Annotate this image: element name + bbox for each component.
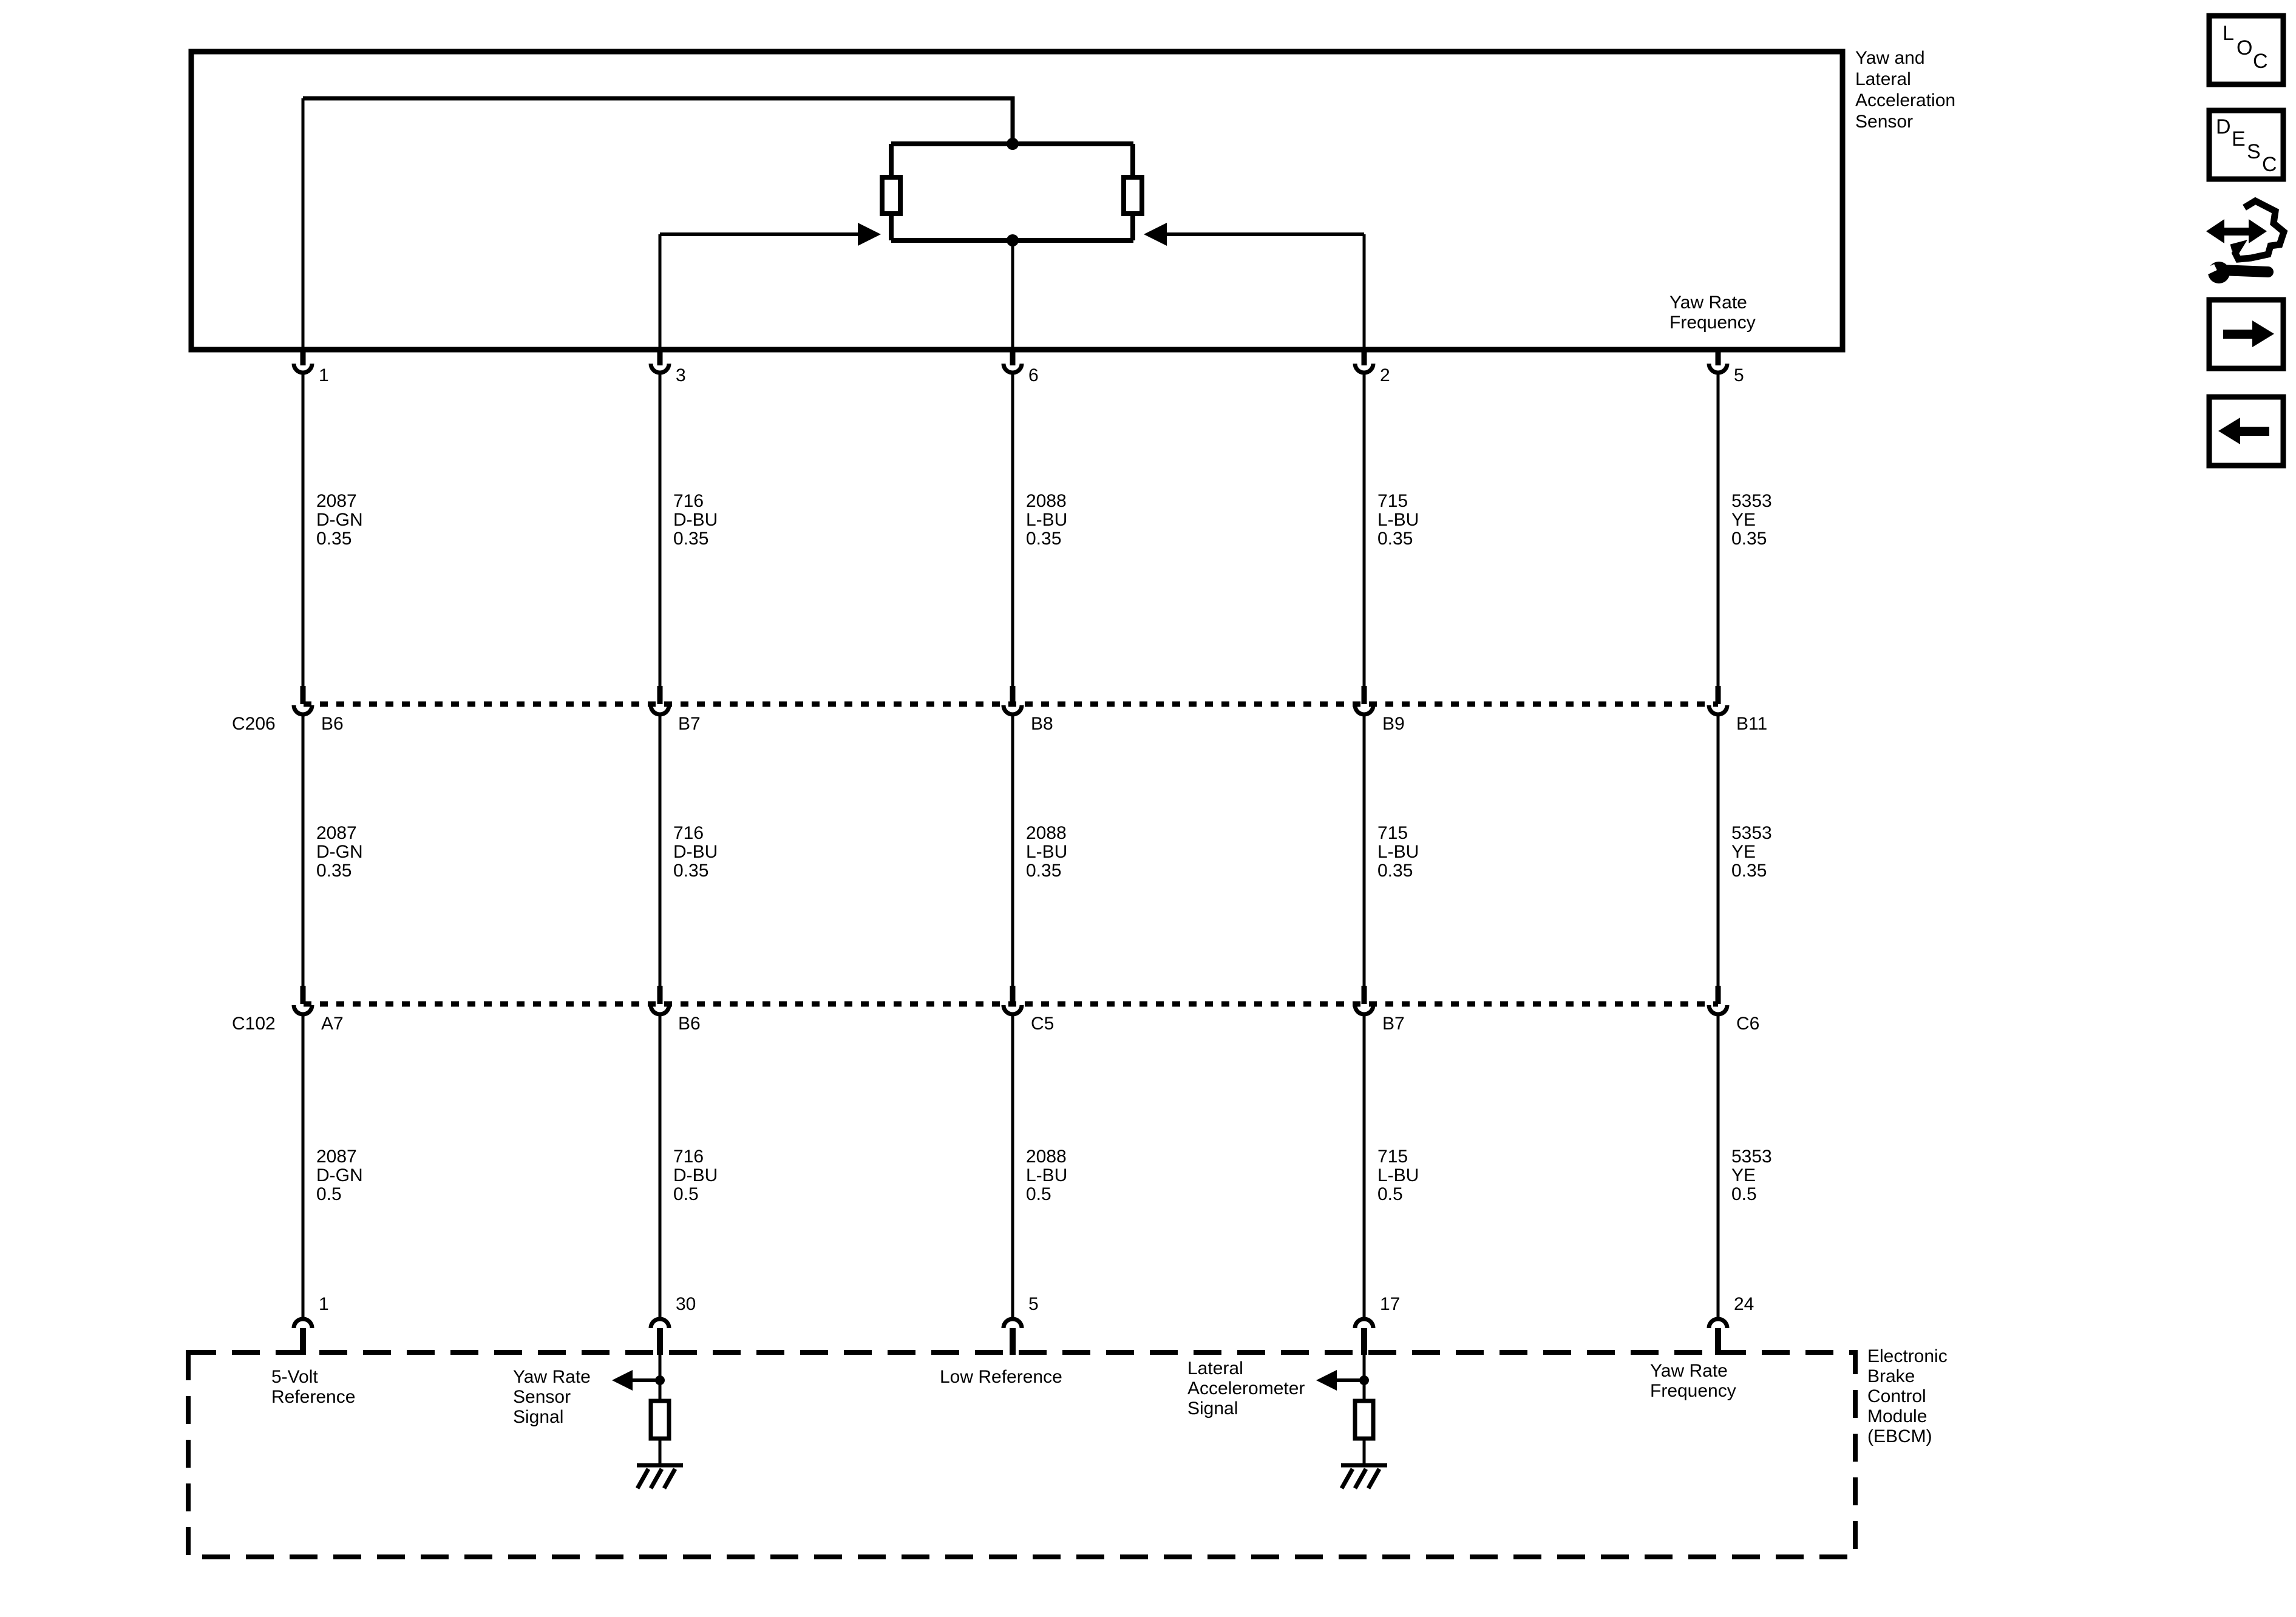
connector-pin: C6 — [1736, 1015, 1759, 1033]
ebcm-pin-number: 30 — [676, 1295, 696, 1314]
pulldown-resistor — [651, 1401, 669, 1439]
loc-letter: L — [2223, 23, 2234, 44]
signal-label-5v-reference: 5-Volt Reference — [271, 1367, 355, 1407]
back-arrow-icon[interactable] — [2218, 418, 2269, 444]
junction-dot — [1359, 1375, 1369, 1385]
connector-pin: B6 — [678, 1015, 701, 1033]
bridge-resistor-left — [882, 177, 900, 214]
sensor-label: Yaw and Lateral Acceleration Sensor — [1855, 47, 1955, 132]
sensor-pin-number: 2 — [1380, 367, 1390, 385]
wire-label: 5353YE0.35 — [1731, 492, 1772, 548]
sensor-pin-connectors — [294, 350, 1727, 373]
ebcm-pin-connectors — [294, 1319, 1727, 1355]
wire-label: 2088L-BU0.35 — [1026, 492, 1067, 548]
wire-label: 2087D-GN0.35 — [316, 824, 363, 880]
desc-letter: E — [2232, 129, 2246, 149]
bridge-resistor-right — [1124, 177, 1142, 214]
signal-arrowhead-right — [858, 223, 881, 246]
ground-symbol — [637, 1465, 683, 1488]
signal-label-low-reference: Low Reference — [940, 1367, 1062, 1387]
vehicle-service-icon[interactable] — [2206, 201, 2284, 283]
signal-arrowhead-left — [612, 1370, 633, 1391]
wire-label: 2088L-BU0.5 — [1026, 1147, 1067, 1204]
forward-arrow-icon[interactable] — [2223, 320, 2274, 347]
signal-arrowhead-left — [1316, 1370, 1337, 1391]
connector-pin: B6 — [321, 715, 344, 733]
sensor-pin-number: 5 — [1734, 367, 1744, 385]
ebcm-pin-number: 17 — [1380, 1295, 1400, 1314]
wire-label: 715L-BU0.35 — [1377, 824, 1419, 880]
connector-name-c206: C206 — [232, 715, 276, 733]
desc-letter: C — [2262, 154, 2277, 175]
sensor-pin-number: 3 — [676, 367, 686, 385]
wire-label: 716D-BU0.35 — [673, 824, 718, 880]
wire-label: 715L-BU0.5 — [1377, 1147, 1419, 1204]
wire-label: 5353YE0.35 — [1731, 824, 1772, 880]
signal-label-yaw-rate-frequency: Yaw Rate Frequency — [1650, 1361, 1736, 1401]
desc-letter: S — [2247, 141, 2261, 162]
loc-letter: C — [2253, 51, 2268, 72]
loc-letter: O — [2237, 38, 2252, 58]
connector-pin: A7 — [321, 1015, 344, 1033]
connector-row-c206 — [294, 686, 1727, 714]
ebcm-label: Electronic Brake Control Module (EBCM) — [1867, 1346, 1948, 1446]
connector-pin: B8 — [1031, 715, 1053, 733]
toolbar — [2206, 16, 2284, 466]
junction-dot — [655, 1375, 665, 1385]
signal-label-lateral-accelerometer-signal: Lateral Accelerometer Signal — [1187, 1358, 1305, 1419]
sensor-pin-number: 1 — [319, 367, 329, 385]
wire-label: 716D-BU0.35 — [673, 492, 718, 548]
wire-label: 715L-BU0.35 — [1377, 492, 1419, 548]
wire-label: 2087D-GN0.35 — [316, 492, 363, 548]
sensor-pin-number: 6 — [1028, 367, 1039, 385]
ebcm-pin-number: 1 — [319, 1295, 329, 1314]
sensor-yaw-rate-frequency-label: Yaw Rate Frequency — [1669, 293, 1756, 333]
pulldown-resistor — [1355, 1401, 1373, 1439]
ground-symbol — [1341, 1465, 1387, 1488]
connector-pin: C5 — [1031, 1015, 1054, 1033]
connector-pin: B11 — [1736, 715, 1767, 733]
connector-pin: B7 — [1382, 1015, 1405, 1033]
ebcm-internal-col2 — [612, 1352, 683, 1488]
wire-label: 5353YE0.5 — [1731, 1147, 1772, 1204]
wire-label: 2088L-BU0.35 — [1026, 824, 1067, 880]
connector-pin: B7 — [678, 715, 701, 733]
connector-row-c102 — [294, 986, 1727, 1014]
connector-pin: B9 — [1382, 715, 1405, 733]
sensor-internal-wiring — [303, 98, 1364, 350]
desc-letter: D — [2216, 117, 2231, 137]
junction-dot — [1007, 138, 1019, 150]
wiring-diagram-page: Yaw and Lateral Acceleration Sensor Yaw … — [0, 0, 2296, 1617]
wire-label: 2087D-GN0.5 — [316, 1147, 363, 1204]
connector-name-c102: C102 — [232, 1015, 276, 1033]
ebcm-pin-number: 5 — [1028, 1295, 1039, 1314]
signal-label-yaw-rate-sensor-signal: Yaw Rate Sensor Signal — [513, 1367, 591, 1427]
wire-label: 716D-BU0.5 — [673, 1147, 718, 1204]
ebcm-internal-col4 — [1316, 1352, 1387, 1488]
ebcm-pin-number: 24 — [1734, 1295, 1754, 1314]
signal-arrowhead-left — [1144, 223, 1167, 246]
harness-wires — [303, 373, 1718, 1320]
